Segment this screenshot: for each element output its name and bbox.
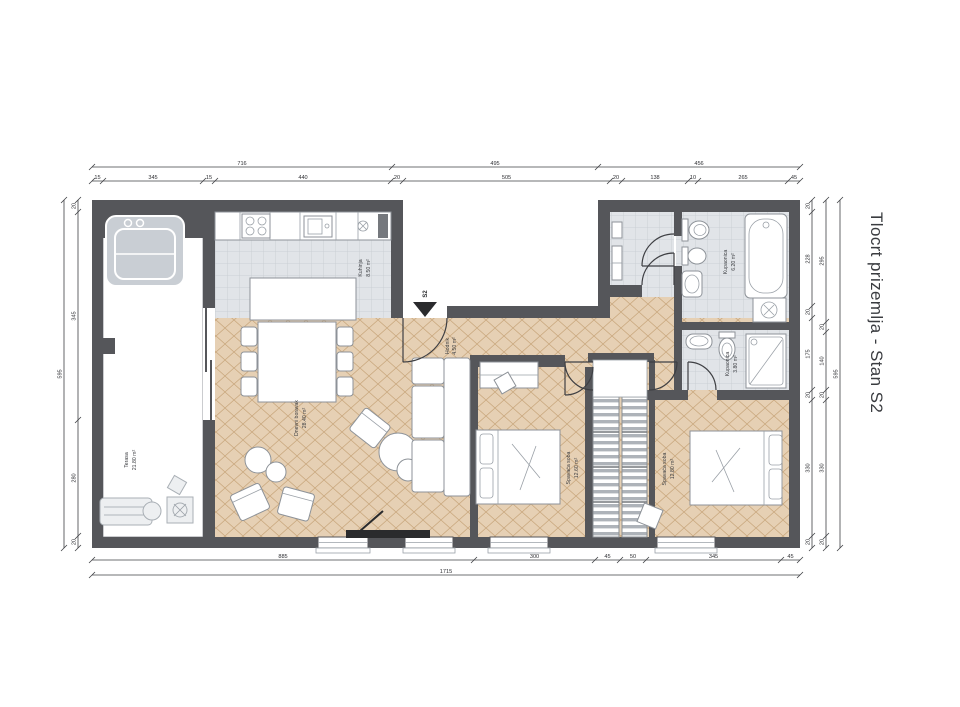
- chair-icon: [337, 327, 353, 346]
- dimension-chain-bottom-inner: 885300455034545: [89, 554, 803, 563]
- dimension-value: 20: [820, 392, 826, 398]
- room-area-terrace: 21.80 m²: [132, 449, 138, 470]
- dimension-value: 330: [820, 463, 826, 472]
- terrace-deco-icon: [167, 475, 186, 494]
- dimension-value: 20: [72, 539, 78, 545]
- pouf-icon: [266, 462, 286, 482]
- room-area-kitchen: 8.50 m²: [366, 259, 372, 277]
- sliding-glass-door: [203, 308, 215, 420]
- chair-icon: [241, 352, 257, 371]
- dimension-value: 300: [530, 554, 539, 560]
- room-area-bedroom2: 12.80 m²: [670, 458, 676, 479]
- dimension-value: 440: [298, 175, 307, 181]
- room-label-living: Dnevni boravak: [294, 400, 300, 436]
- tall-cabinet-icon: [612, 246, 622, 280]
- shower-icon: [746, 334, 786, 388]
- dining-furniture: [241, 322, 353, 402]
- window: [316, 537, 370, 553]
- dimension-value: 138: [650, 175, 659, 181]
- cooktop-icon: [242, 214, 270, 238]
- bathtub-icon: [745, 214, 787, 298]
- dimension-value: 265: [738, 175, 747, 181]
- room-label-bedroom1: Spavaća soba: [566, 451, 572, 484]
- sofa: [412, 358, 470, 496]
- bidet-icon: [682, 247, 706, 265]
- plant-table-icon: [167, 497, 193, 523]
- dimension-value: 10: [690, 175, 696, 181]
- room-label-hall: Hodnik: [445, 338, 451, 355]
- dimension-value: 456: [694, 161, 703, 167]
- dimension-value: 20: [394, 175, 400, 181]
- chair-icon: [337, 377, 353, 396]
- window: [488, 537, 550, 553]
- dimension-value: 595: [834, 369, 840, 378]
- hot-tub-icon: [106, 216, 184, 286]
- plan-title: Tlocrt prizemlja - Stan S2: [866, 212, 886, 462]
- room-area-bathroom2: 3.80 m²: [733, 355, 739, 373]
- floor-plan-drawing: S2 Terasa 21.80 m² Kuhinja 8.50 m² Dnevn…: [0, 0, 960, 707]
- dimension-value: 20: [613, 175, 619, 181]
- kitchen-island: [250, 278, 356, 320]
- room-label-bathroom1: Kupaonica: [723, 250, 729, 275]
- room-label-bathroom2: Kupaonica: [725, 352, 731, 377]
- dimension-value: 140: [820, 356, 826, 365]
- dimension-value: 330: [806, 463, 812, 472]
- chair-icon: [337, 352, 353, 371]
- dimension-value: 15: [94, 175, 100, 181]
- dimension-value: 716: [237, 161, 246, 167]
- dimension-value: 50: [630, 554, 636, 560]
- window: [403, 537, 455, 553]
- window: [655, 537, 717, 553]
- dimension-value: 20: [72, 203, 78, 209]
- dimension-value: 20: [820, 539, 826, 545]
- dimension-value: 175: [806, 349, 812, 358]
- room-label-bedroom2: Spavaća soba: [662, 452, 668, 485]
- dimension-value: 885: [278, 554, 287, 560]
- dining-table: [258, 322, 336, 402]
- dimension-value: 20: [806, 309, 812, 315]
- dimension-value: 45: [604, 554, 610, 560]
- kitchen-counter: [215, 212, 391, 240]
- dimension-chain-left-outer: 595: [58, 197, 68, 551]
- dimension-value: 20: [820, 324, 826, 330]
- dimension-value: 345: [148, 175, 157, 181]
- terrace-furniture: [100, 216, 193, 525]
- room-label-terrace: Terasa: [124, 452, 130, 468]
- dimension-value: 15: [206, 175, 212, 181]
- dimension-value: 1715: [440, 569, 452, 575]
- room-area-living: 28.40 m²: [302, 407, 308, 428]
- dimension-value: 505: [502, 175, 511, 181]
- cabinet-icon: [612, 222, 622, 238]
- dimension-value: 345: [72, 311, 78, 320]
- room-area-bathroom1: 6.20 m²: [731, 253, 737, 271]
- bathroom-sink-icon: [686, 334, 712, 349]
- dimension-value: 280: [72, 473, 78, 482]
- room-area-hall: 4.50 m²: [452, 337, 458, 355]
- dimension-chain-right-2: 295201402033020: [820, 197, 830, 551]
- dimension-value: 45: [791, 175, 797, 181]
- dimension-value: 45: [787, 554, 793, 560]
- entrance-label: S2: [423, 290, 429, 298]
- vestibule: [593, 360, 647, 397]
- bed-icon: [690, 431, 782, 505]
- entry-arrow-icon: [413, 302, 437, 317]
- dimension-value: 595: [58, 369, 64, 378]
- dimension-chain-top-inner: 153451544020505201381026545: [89, 175, 803, 184]
- dimension-value: 495: [490, 161, 499, 167]
- bathroom-sink-icon: [682, 271, 702, 297]
- room-label-kitchen: Kuhinja: [358, 259, 364, 276]
- toilet-icon: [682, 219, 709, 241]
- fridge-icon: [378, 214, 388, 238]
- dimension-chain-top-outer: 716495456: [89, 161, 803, 170]
- dimension-chain-left-inner: 2034528020: [72, 197, 82, 551]
- chair-icon: [241, 327, 257, 346]
- dimension-value: 345: [709, 554, 718, 560]
- dimension-chain-right-3: 595: [834, 197, 844, 551]
- chair-icon: [241, 377, 257, 396]
- dimension-value: 228: [806, 254, 812, 263]
- dimension-value: 20: [806, 539, 812, 545]
- washing-machine-icon: [753, 298, 786, 322]
- floor-plan-page: S2 Terasa 21.80 m² Kuhinja 8.50 m² Dnevn…: [0, 0, 960, 707]
- kitchen-sink-icon: [304, 216, 332, 237]
- floor-corridor: [610, 297, 676, 318]
- room-area-bedroom1: 12.60 m²: [574, 457, 580, 478]
- dimension-chain-right-1: 20228201752033020: [806, 197, 816, 551]
- sun-lounger-icon: [100, 498, 161, 525]
- dimension-chain-bottom-outer: 1715: [89, 569, 803, 578]
- dimension-value: 295: [820, 256, 826, 265]
- dimension-value: 20: [806, 203, 812, 209]
- dimension-value: 20: [806, 392, 812, 398]
- bed-icon: [476, 430, 560, 504]
